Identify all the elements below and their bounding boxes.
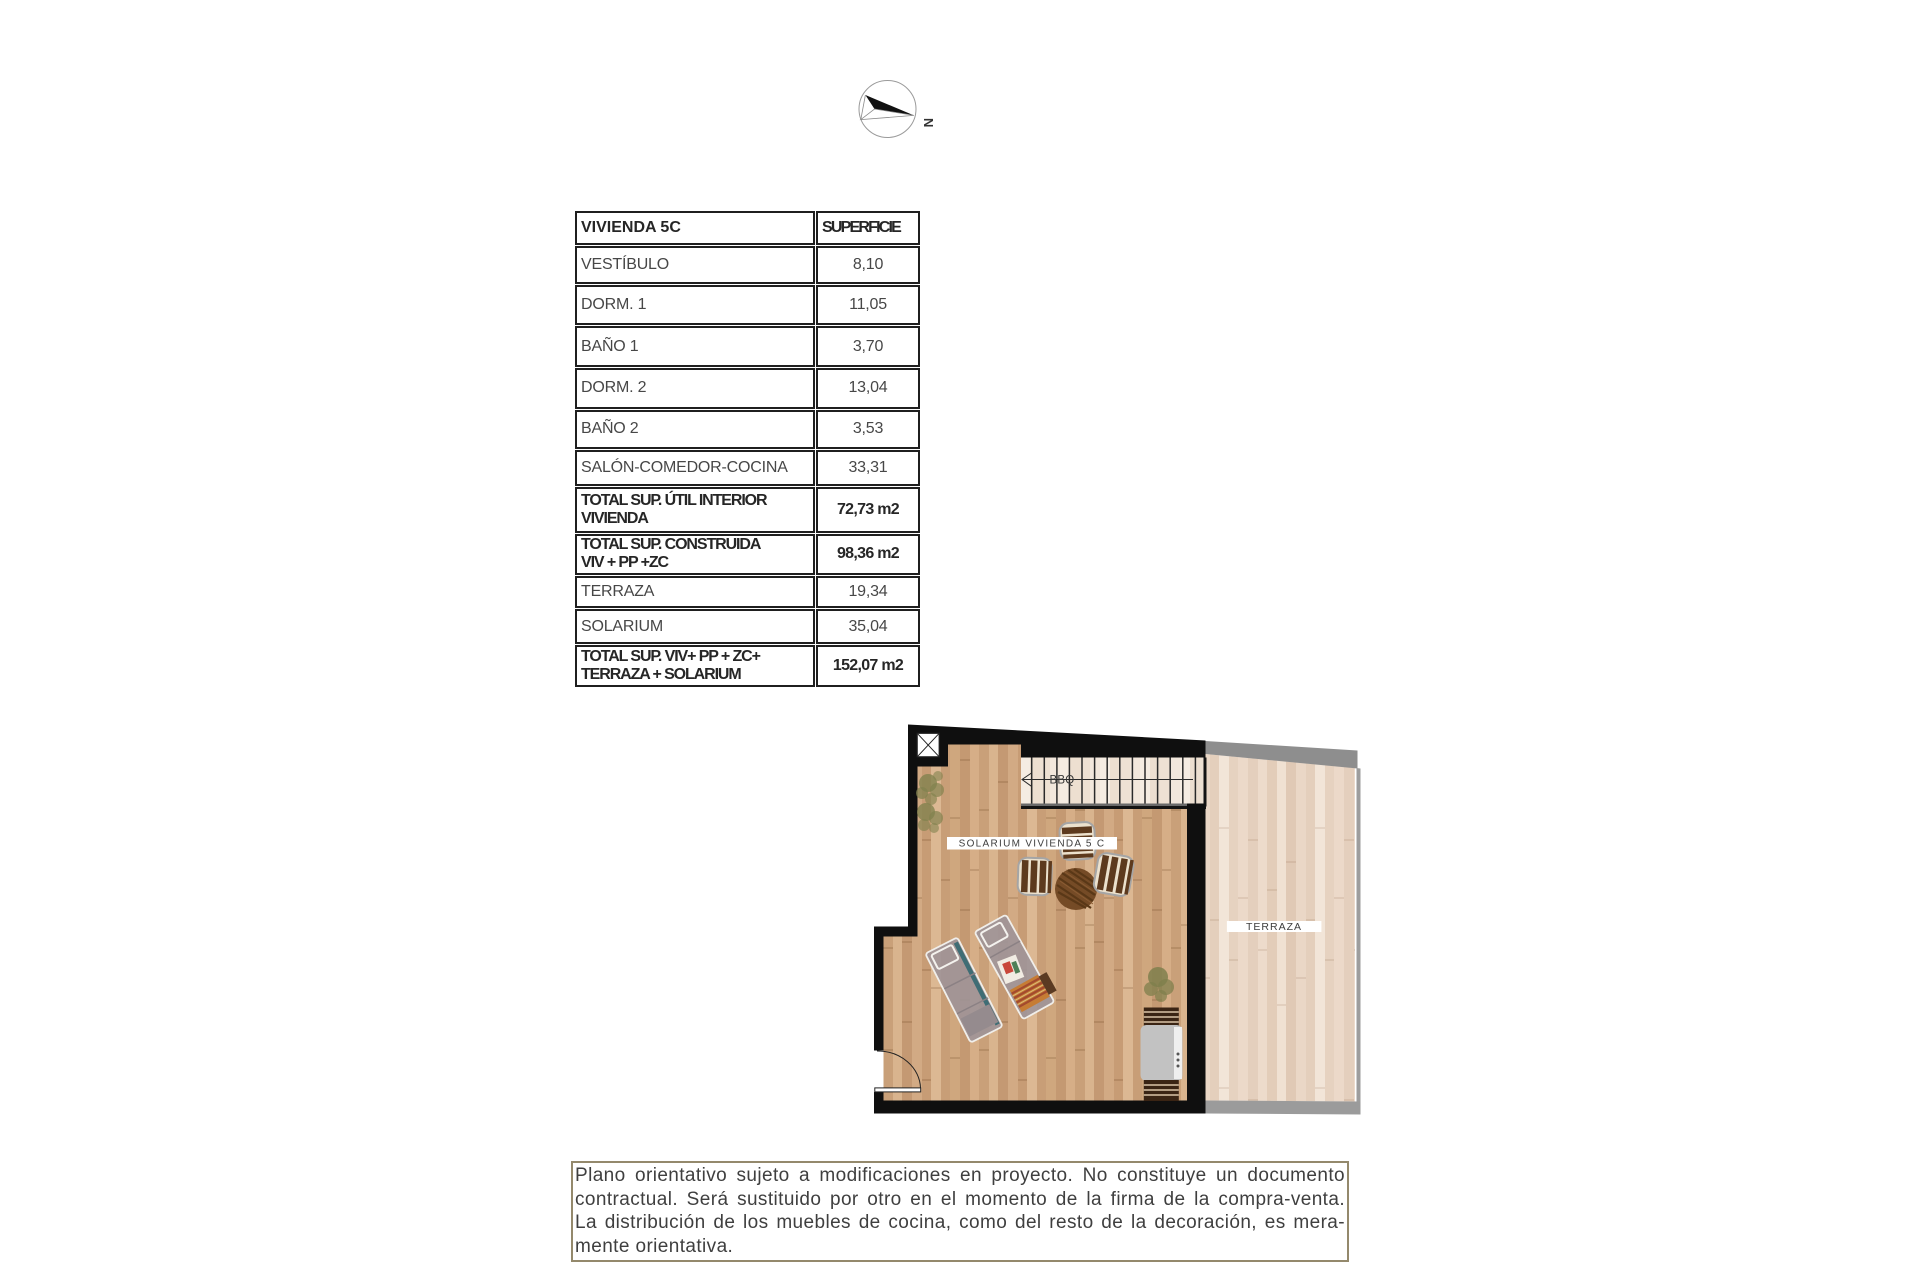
svg-text:TERRAZA: TERRAZA <box>1246 921 1302 933</box>
svg-text:N: N <box>921 118 936 127</box>
svg-text:SOLARIUM VIVIENDA 5 C: SOLARIUM VIVIENDA 5 C <box>959 839 1106 850</box>
svg-text:BBQ: BBQ <box>1050 775 1075 787</box>
